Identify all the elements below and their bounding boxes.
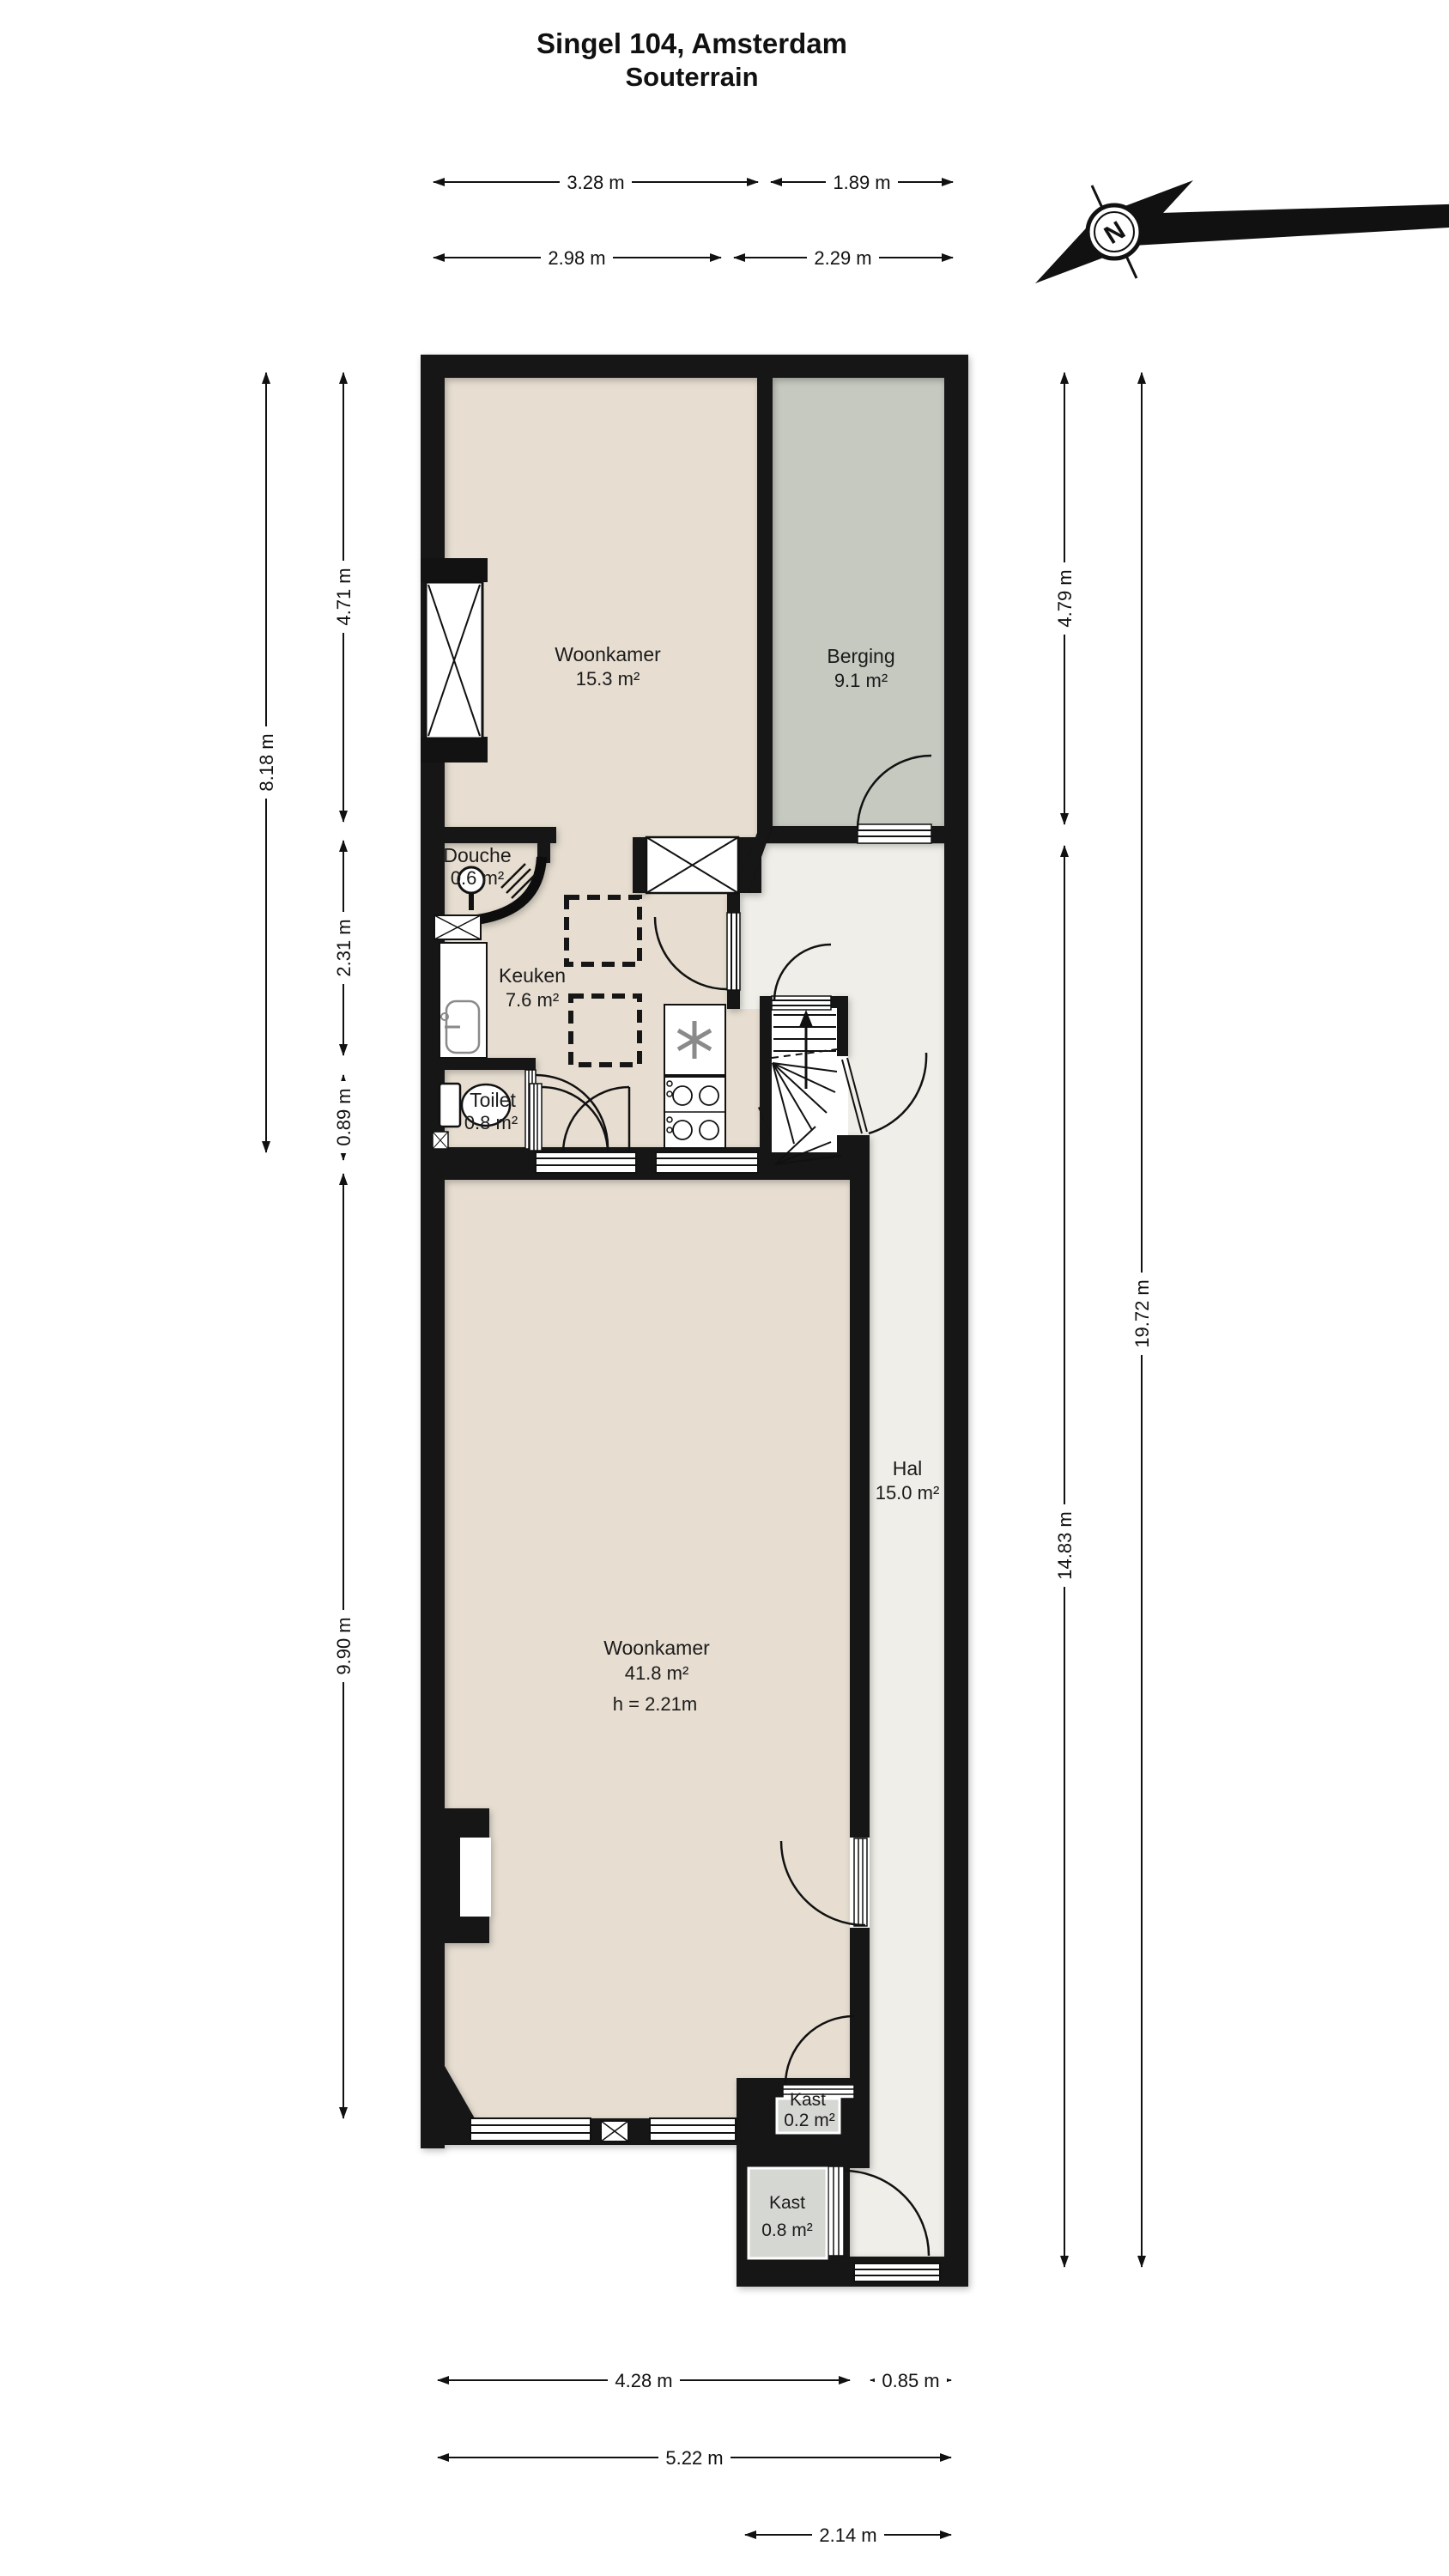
dim-left-8-18: 8.18 m: [256, 733, 277, 791]
dim-left-4-71: 4.71 m: [333, 568, 355, 625]
label-toilet-name: Toilet: [470, 1089, 516, 1111]
dim-top-3-28: 3.28 m: [567, 172, 624, 193]
label-douche-name: Douche: [443, 844, 511, 866]
boiler-icon: [664, 1005, 725, 1075]
vent-box-toilet-icon: [433, 1132, 448, 1149]
label-kast-large-area: 0.8 m²: [761, 2221, 813, 2240]
label-keuken-area: 7.6 m²: [506, 989, 559, 1011]
dim-top-1-89: 1.89 m: [833, 172, 890, 193]
label-kast-small-area: 0.2 m²: [784, 2111, 835, 2130]
dim-bottom-0-85: 0.85 m: [882, 2370, 939, 2391]
label-woonkamer-main-name: Woonkamer: [603, 1637, 710, 1659]
stove-icon: [664, 1077, 725, 1148]
window-woonkamer-bottom-left: [470, 2118, 591, 2141]
label-woonkamer-main-height: h = 2.21m: [613, 1693, 697, 1715]
kitchen-sink-icon: [440, 943, 487, 1058]
dim-right-19-72: 19.72 m: [1131, 1279, 1153, 1348]
label-toilet-area: 0.8 m²: [464, 1112, 518, 1133]
label-woonkamer-top-area: 15.3 m²: [576, 668, 640, 690]
dim-bottom-2-14: 2.14 m: [819, 2524, 876, 2546]
closet-box-icon: [646, 837, 738, 893]
dim-left-0-89: 0.89 m: [333, 1088, 355, 1145]
dim-bottom-5-22: 5.22 m: [665, 2447, 723, 2469]
label-hal-name: Hal: [893, 1457, 923, 1479]
kast-large-floor: [749, 2168, 827, 2258]
label-woonkamer-top-name: Woonkamer: [555, 643, 661, 665]
label-berging-name: Berging: [827, 645, 894, 667]
label-berging-area: 9.1 m²: [834, 670, 888, 691]
compass-north-icon: N: [1035, 179, 1449, 283]
dim-right-4-79: 4.79 m: [1054, 569, 1076, 627]
hal-corridor-floor: [870, 844, 944, 2267]
label-keuken-name: Keuken: [499, 964, 566, 987]
label-hal-area: 15.0 m²: [876, 1482, 940, 1504]
window-woonkamer-top: [421, 558, 488, 762]
window-woonkamer-bottom-right: [650, 2118, 736, 2141]
label-kast-large-name: Kast: [769, 2193, 805, 2213]
window-divider-right: [656, 1152, 758, 1173]
staircase: [772, 1008, 841, 1164]
label-douche-area: 0.6 m²: [451, 867, 504, 889]
floorplan-page: Singel 104, Amsterdam Souterrain N: [0, 0, 1449, 2576]
vent-box-douche-icon: [434, 915, 481, 939]
window-divider-left: [536, 1152, 636, 1173]
label-kast-small-name: Kast: [790, 2090, 826, 2110]
label-woonkamer-main-area: 41.8 m²: [625, 1662, 689, 1684]
floorplan-drawing: Singel 104, Amsterdam Souterrain N: [0, 0, 1449, 2576]
berging-floor: [767, 367, 944, 844]
vent-box-pier: [601, 2121, 628, 2142]
page-title: Singel 104, Amsterdam: [537, 27, 847, 59]
dim-left-9-90: 9.90 m: [333, 1617, 355, 1674]
page-subtitle: Souterrain: [625, 62, 758, 92]
dim-top-2-98: 2.98 m: [548, 247, 605, 269]
dim-left-2-31: 2.31 m: [333, 919, 355, 976]
dim-top-2-29: 2.29 m: [814, 247, 871, 269]
dim-right-14-83: 14.83 m: [1054, 1511, 1076, 1580]
dim-bottom-4-28: 4.28 m: [615, 2370, 672, 2391]
window-hal-entrance: [854, 2263, 940, 2281]
